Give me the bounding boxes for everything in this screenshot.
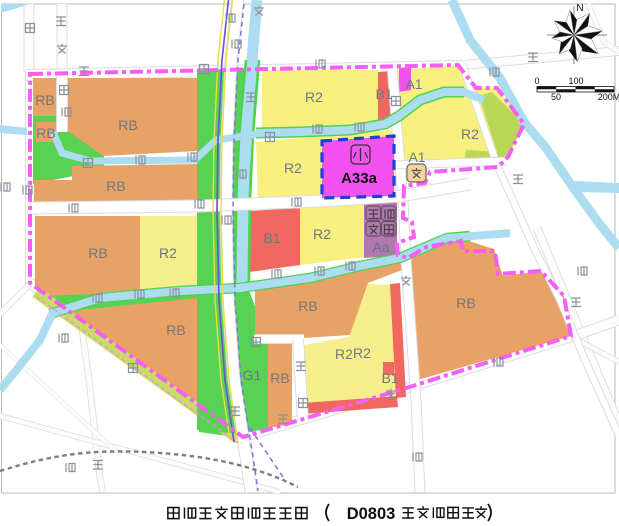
svg-text:R2: R2 [305,89,323,105]
svg-text:R2: R2 [159,245,177,261]
svg-text:B1: B1 [381,370,398,386]
svg-text:B1: B1 [375,86,392,102]
svg-text:RB: RB [36,125,55,141]
svg-text:A33a: A33a [341,170,378,187]
svg-text:R2: R2 [461,126,479,142]
svg-text:N: N [576,3,583,14]
svg-text:Aa: Aa [372,239,389,255]
svg-text:RB: RB [118,117,137,133]
svg-text:RB: RB [106,178,125,194]
svg-text:RB: RB [298,298,317,314]
svg-text:A1: A1 [405,76,422,92]
svg-text:200M: 200M [598,92,619,102]
svg-text:100: 100 [568,76,583,86]
svg-text:B1: B1 [263,230,280,246]
svg-text:RB: RB [270,370,289,386]
svg-text:D0803: D0803 [347,505,396,523]
svg-text:R2: R2 [284,160,302,176]
svg-text:R2: R2 [353,345,371,361]
svg-text:A1: A1 [408,149,425,165]
svg-text:RB: RB [166,322,185,338]
svg-text:0: 0 [534,76,539,86]
svg-text:50: 50 [551,92,561,102]
svg-text:R2: R2 [313,226,331,242]
svg-text:R2: R2 [335,346,353,362]
svg-text:RB: RB [88,245,107,261]
svg-text:G1: G1 [243,367,262,383]
svg-text:RB: RB [456,295,475,311]
svg-text:RB: RB [35,92,54,108]
